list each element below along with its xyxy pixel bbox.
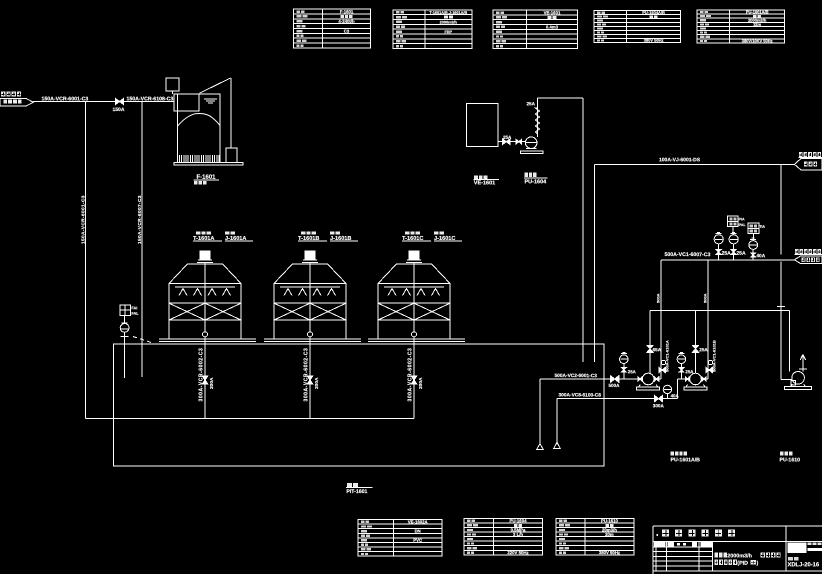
svg-text:500A: 500A	[608, 383, 620, 388]
svg-text:25A: 25A	[699, 347, 708, 352]
svg-text:TIA: TIA	[759, 225, 765, 229]
svg-text:C3: C3	[344, 29, 350, 34]
svg-text:0.4m3: 0.4m3	[546, 24, 559, 29]
svg-text:PVC: PVC	[413, 538, 422, 543]
svg-text:65A: 65A	[653, 347, 662, 352]
svg-text:25A: 25A	[736, 251, 746, 257]
svg-text:40A: 40A	[671, 393, 680, 398]
svg-text:4-240t/h: 4-240t/h	[338, 19, 355, 24]
svg-text:500A-VC1-6101B: 500A-VC1-6101B	[712, 340, 717, 372]
svg-text:PU-1604: PU-1604	[524, 179, 547, 185]
svg-text:150A-VCR-6001-C3: 150A-VCR-6001-C3	[41, 96, 88, 102]
svg-text:PIA: PIA	[739, 217, 745, 221]
svg-text:380V 50Hz: 380V 50Hz	[599, 550, 620, 555]
svg-text:150A-VCR-6108-C3: 150A-VCR-6108-C3	[126, 96, 173, 102]
svg-text:PU-1601A/B: PU-1601A/B	[746, 9, 769, 14]
svg-text:300A-VCR-6002-C3: 300A-VCR-6002-C3	[303, 348, 309, 402]
svg-text:380V/10KV 50Hz: 380V/10KV 50Hz	[742, 38, 773, 43]
svg-text:XDLJ-20-16: XDLJ-20-16	[787, 562, 819, 568]
svg-text:): )	[756, 561, 758, 567]
svg-text:PU-1610: PU-1610	[779, 457, 800, 463]
svg-text:150A-VCR-6007-C3: 150A-VCR-6007-C3	[137, 195, 143, 244]
svg-text:200A: 200A	[209, 377, 215, 389]
svg-text:500A-VC1-6101A: 500A-VC1-6101A	[665, 340, 670, 372]
svg-text:300A: 300A	[653, 403, 665, 408]
svg-text:F-1601: F-1601	[340, 9, 354, 14]
svg-text:25A: 25A	[628, 369, 637, 374]
svg-text:VE-1601: VE-1601	[544, 10, 561, 15]
svg-text:(PID: (PID	[737, 561, 748, 567]
svg-text:150A-VCR-6001-C3: 150A-VCR-6001-C3	[80, 195, 86, 244]
svg-text:25A: 25A	[503, 135, 512, 140]
svg-text:PU-1610: PU-1610	[601, 518, 619, 523]
svg-text:500A: 500A	[702, 293, 707, 303]
svg-text:25A: 25A	[722, 251, 732, 257]
svg-text:150A: 150A	[112, 107, 124, 113]
svg-text:FRP: FRP	[444, 30, 452, 34]
svg-text:2000m3/h: 2000m3/h	[440, 20, 458, 24]
svg-text:500A-VC1-6007-C3: 500A-VC1-6007-C3	[664, 252, 710, 258]
svg-text:2000m3/h: 2000m3/h	[727, 553, 752, 559]
svg-text:3 L/h: 3 L/h	[513, 532, 523, 537]
svg-text:FAL: FAL	[131, 312, 139, 316]
svg-text:T-1601A/B,J-1601A/B: T-1601A/B,J-1601A/B	[429, 11, 467, 15]
svg-text:200A: 200A	[418, 377, 424, 389]
svg-text:PIT-1601: PIT-1601	[346, 489, 367, 495]
svg-text:PAL: PAL	[739, 223, 747, 227]
svg-text:300A-VCR-6002-C3: 300A-VCR-6002-C3	[407, 348, 413, 402]
svg-text:200A: 200A	[314, 377, 320, 389]
svg-text:PU-1604: PU-1604	[510, 518, 528, 523]
svg-text:FAI: FAI	[131, 306, 137, 310]
svg-text:380V 50Hz: 380V 50Hz	[644, 38, 664, 43]
svg-text:300A-VCR-6002-C3: 300A-VCR-6002-C3	[198, 348, 204, 402]
svg-text:500A-VC2-6001-C3: 500A-VC2-6001-C3	[554, 373, 597, 379]
svg-text:DN: DN	[415, 529, 421, 534]
svg-text:40A: 40A	[756, 253, 765, 259]
svg-text:PU-1604A/B: PU-1604A/B	[642, 10, 665, 15]
svg-text:32m: 32m	[753, 22, 761, 27]
svg-text:25A: 25A	[526, 101, 535, 106]
svg-text:100A-VJ-6001-DS: 100A-VJ-6001-DS	[659, 157, 701, 163]
svg-text:PU-1601A/B: PU-1601A/B	[670, 457, 700, 463]
svg-text:220V 50Hz: 220V 50Hz	[507, 550, 528, 555]
svg-text:VE-1602A: VE-1602A	[408, 519, 428, 524]
svg-text:300A-VC8-6100-C8: 300A-VC8-6100-C8	[558, 392, 601, 398]
svg-text:500A: 500A	[655, 293, 660, 303]
svg-text:20m: 20m	[605, 532, 614, 537]
svg-text:VE-1601: VE-1601	[474, 180, 495, 186]
